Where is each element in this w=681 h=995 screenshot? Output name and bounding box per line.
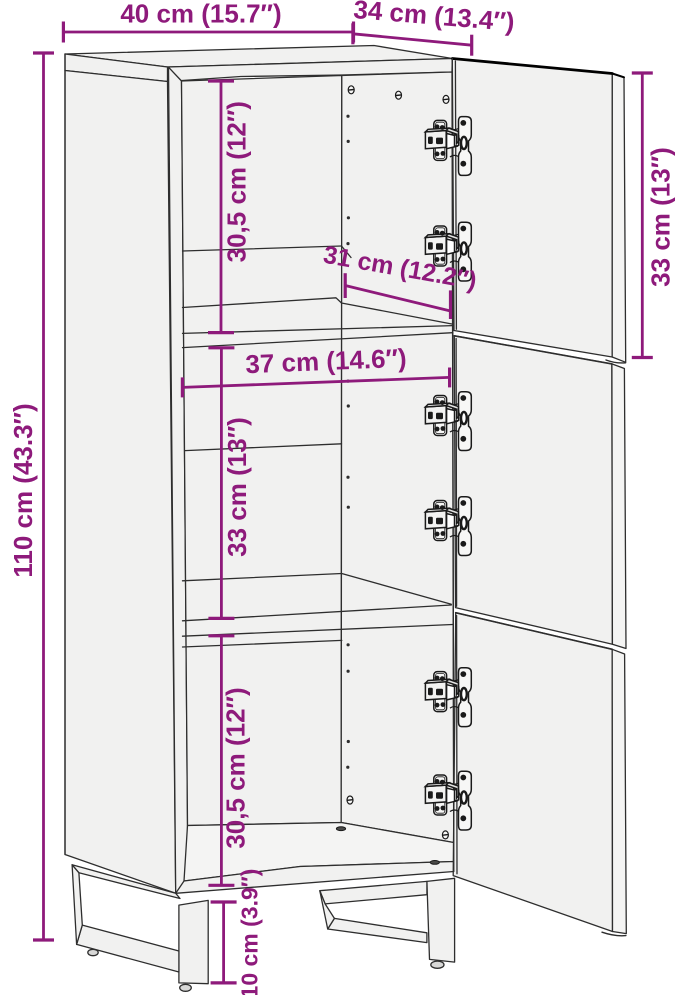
svg-text:33 cm (13″): 33 cm (13″) xyxy=(646,147,676,287)
svg-text:40 cm (15.7″): 40 cm (15.7″) xyxy=(120,0,281,29)
svg-text:30,5 cm (12″): 30,5 cm (12″) xyxy=(222,101,252,262)
svg-text:110 cm (43.3″): 110 cm (43.3″) xyxy=(8,403,38,577)
svg-text:33 cm (13″): 33 cm (13″) xyxy=(222,417,252,557)
svg-text:10 cm (3.9″): 10 cm (3.9″) xyxy=(237,869,263,995)
svg-text:30,5 cm (12″): 30,5 cm (12″) xyxy=(221,687,251,848)
